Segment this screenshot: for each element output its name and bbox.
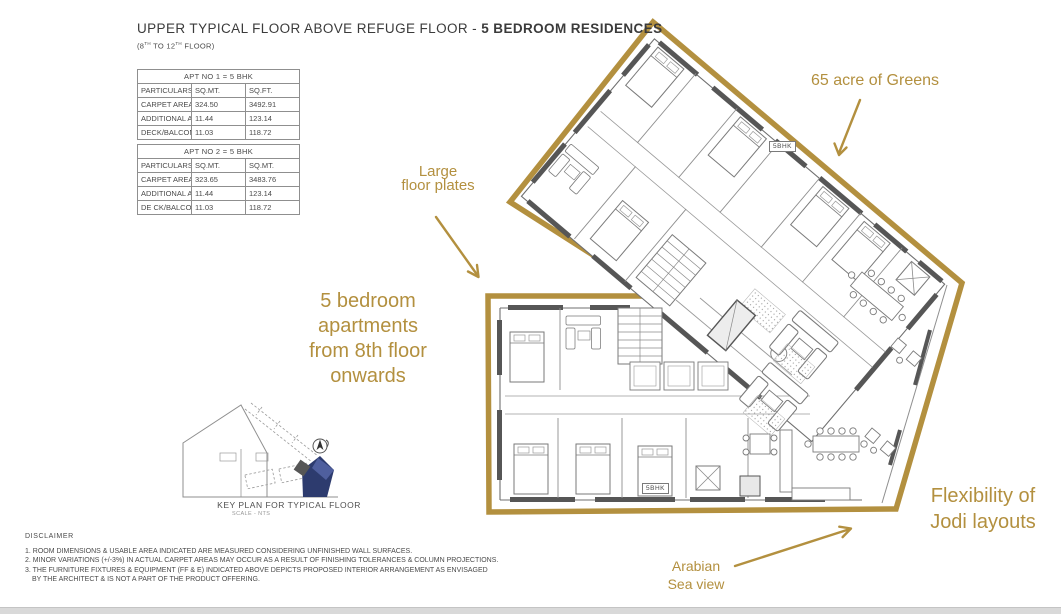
- key-plan-drawing: [183, 403, 338, 497]
- greens-arrow: [835, 100, 861, 155]
- table-cell: 3492.91: [246, 98, 300, 112]
- table-cell: 3483.76: [246, 173, 300, 187]
- floor-range-subtitle: (8TH TO 12TH FLOOR): [137, 41, 215, 51]
- table-cell: 323.65: [192, 173, 246, 187]
- page-title-regular: UPPER TYPICAL FLOOR ABOVE REFUGE FLOOR -: [137, 21, 481, 36]
- page-bottom-edge: [0, 607, 1061, 614]
- arabian-sea-arrow: [735, 527, 851, 566]
- table-title: APT NO 2 = 5 BHK: [138, 145, 300, 159]
- table-header-cell: SQ.MT.: [192, 84, 246, 98]
- table-header-cell: PARTICULARS (AS PER RERA): [138, 84, 192, 98]
- table-title: APT NO 1 = 5 BHK: [138, 70, 300, 84]
- annotation-arabian-sea: Arabian Sea view: [646, 557, 746, 593]
- table-cell: 118.72: [246, 126, 300, 140]
- key-plan-scale-note: SCALE - NTS: [232, 511, 270, 517]
- table-cell: 11.03: [192, 126, 246, 140]
- apt2-area-table: APT NO 2 = 5 BHK PARTICULARS (AS PER RER…: [137, 144, 300, 215]
- table-header-cell: SQ.MT.: [246, 159, 300, 173]
- disclaimer-line: BY THE ARCHITECT & IS NOT A PART OF THE …: [32, 575, 525, 584]
- page-title-bold: 5 BEDROOM RESIDENCES: [481, 21, 662, 36]
- table-cell: 11.03: [192, 201, 246, 215]
- table-cell: DE CK/BALCONY AREA: [138, 201, 192, 215]
- table-cell: CARPET AREA: [138, 173, 192, 187]
- annotation-five-bedroom: 5 bedroom apartments from 8th floor onwa…: [268, 289, 468, 389]
- key-plan-title: KEY PLAN FOR TYPICAL FLOOR: [214, 500, 364, 510]
- unit-label-lower: 5BHK: [642, 483, 669, 494]
- north-arrow-icon: [313, 439, 328, 453]
- table-cell: 11.44: [192, 187, 246, 201]
- large-plates-arrow: [436, 217, 479, 277]
- table-cell: 324.50: [192, 98, 246, 112]
- table-cell: 123.14: [246, 112, 300, 126]
- brochure-page: UPPER TYPICAL FLOOR ABOVE REFUGE FLOOR -…: [0, 0, 1061, 614]
- table-header-cell: SQ.MT.: [192, 159, 246, 173]
- disclaimer-line: 1. ROOM DIMENSIONS & USABLE AREA INDICAT…: [25, 547, 525, 556]
- table-header-cell: SQ.FT.: [246, 84, 300, 98]
- table-cell: ADDITIONAL AREA: [138, 187, 192, 201]
- disclaimer-title: DISCLAIMER: [25, 533, 74, 540]
- disclaimer-text: 1. ROOM DIMENSIONS & USABLE AREA INDICAT…: [25, 547, 525, 584]
- disclaimer-line: 3. THE FURNITURE FIXTURES & EQUIPMENT (F…: [25, 566, 525, 575]
- unit-label-upper: 5BHK: [769, 141, 796, 152]
- table-cell: CARPET AREA: [138, 98, 192, 112]
- annotation-large-floor-plates: Large floor plates: [386, 165, 490, 193]
- annotation-greens: 65 acre of Greens: [800, 72, 950, 90]
- apt1-area-table: APT NO 1 = 5 BHK PARTICULARS (AS PER RER…: [137, 69, 300, 140]
- table-cell: 123.14: [246, 187, 300, 201]
- table-cell: 118.72: [246, 201, 300, 215]
- page-title: UPPER TYPICAL FLOOR ABOVE REFUGE FLOOR -…: [137, 21, 663, 36]
- table-cell: DECK/BALCONY AREA: [138, 126, 192, 140]
- table-cell: ADDITIONAL AREA: [138, 112, 192, 126]
- disclaimer-line: 2. MINOR VARIATIONS (+/-3%) IN ACTUAL CA…: [25, 556, 525, 565]
- annotation-flexibility: Flexibility of Jodi layouts: [908, 483, 1058, 535]
- table-header-cell: PARTICULARS (AS PER RERA): [138, 159, 192, 173]
- table-cell: 11.44: [192, 112, 246, 126]
